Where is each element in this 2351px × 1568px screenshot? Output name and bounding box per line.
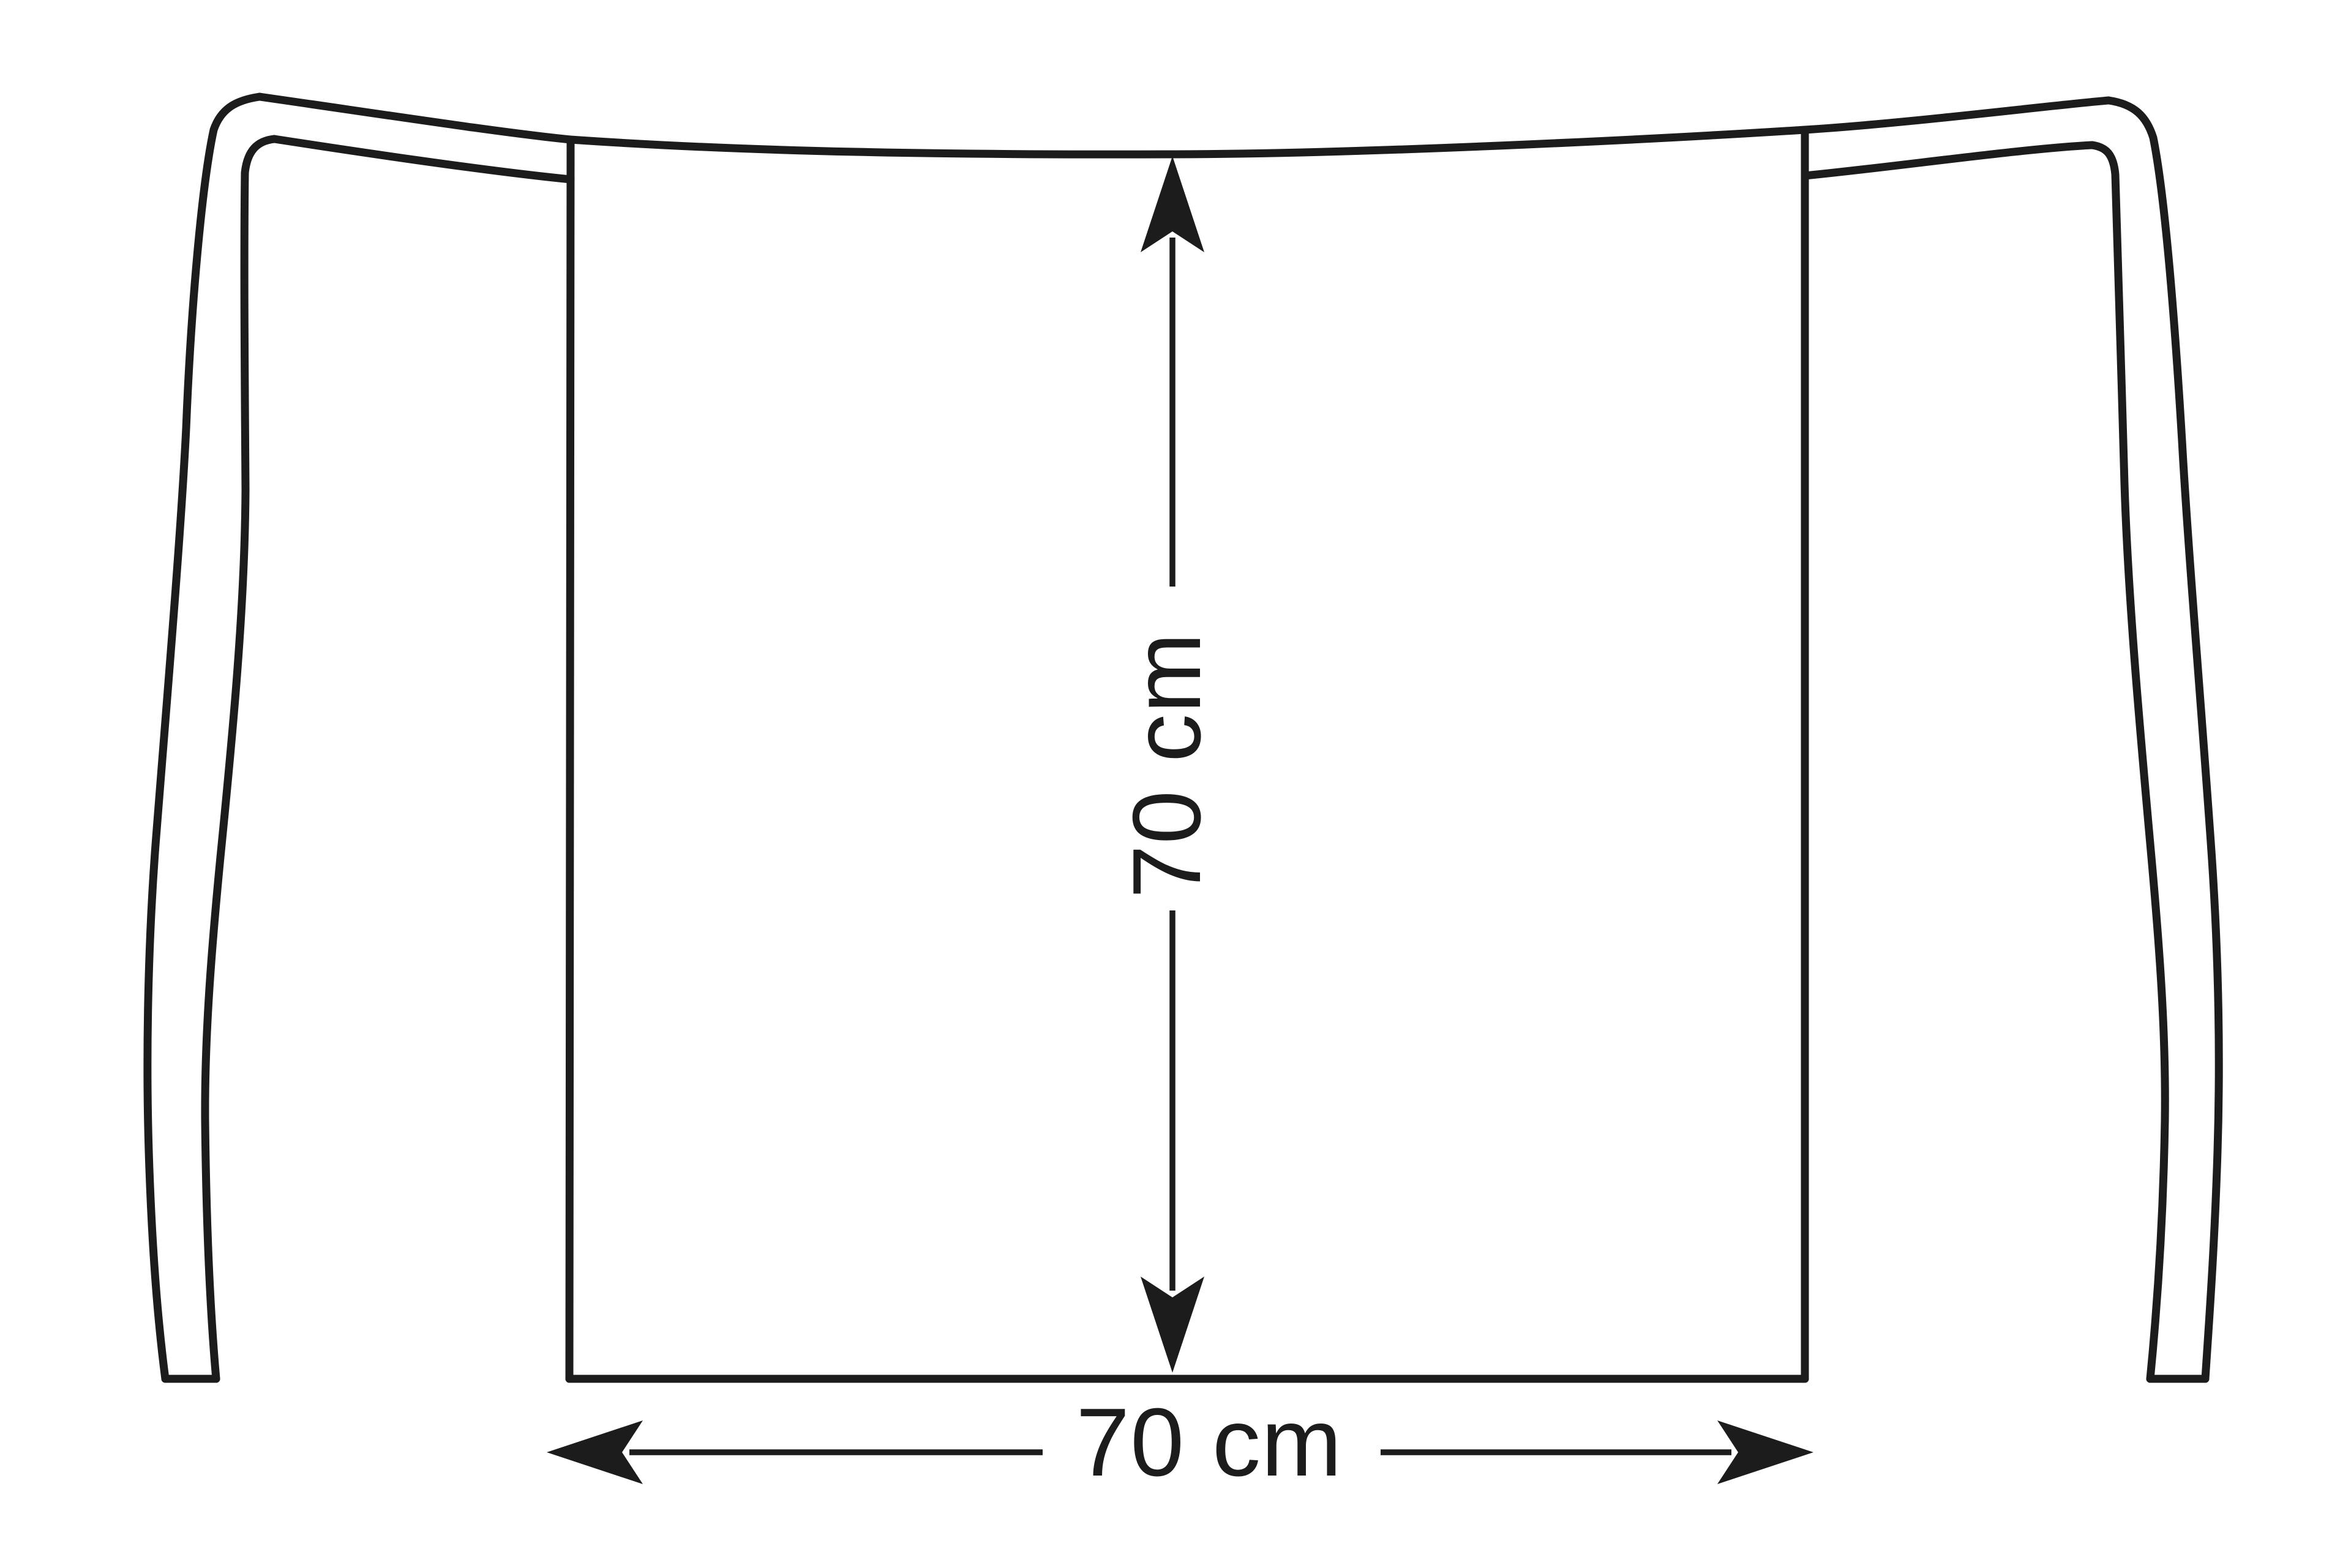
waistband-top-edge xyxy=(260,97,2109,154)
arrow-left-icon xyxy=(547,1420,643,1484)
width-dimension-label: 70 cm xyxy=(1076,1389,1342,1496)
width-dimension: 70 cm xyxy=(547,1389,1813,1496)
arrow-down-icon xyxy=(1141,1277,1204,1373)
waistband-lower-edge-left xyxy=(274,139,571,179)
height-dimension-label: 70 cm xyxy=(1113,632,1221,898)
apron-diagram-canvas: 70 cm 70 cm xyxy=(0,0,2351,1568)
right-tie-inner-edge xyxy=(2092,145,2165,1379)
height-dimension: 70 cm xyxy=(1113,156,1221,1373)
waistband-lower-edge-right xyxy=(1805,145,2092,176)
apron-dimension-diagram: 70 cm 70 cm xyxy=(0,0,2351,1568)
arrow-right-icon xyxy=(1717,1420,1813,1484)
apron-left-edge xyxy=(569,140,571,1379)
left-tie-inner-edge xyxy=(205,139,274,1379)
